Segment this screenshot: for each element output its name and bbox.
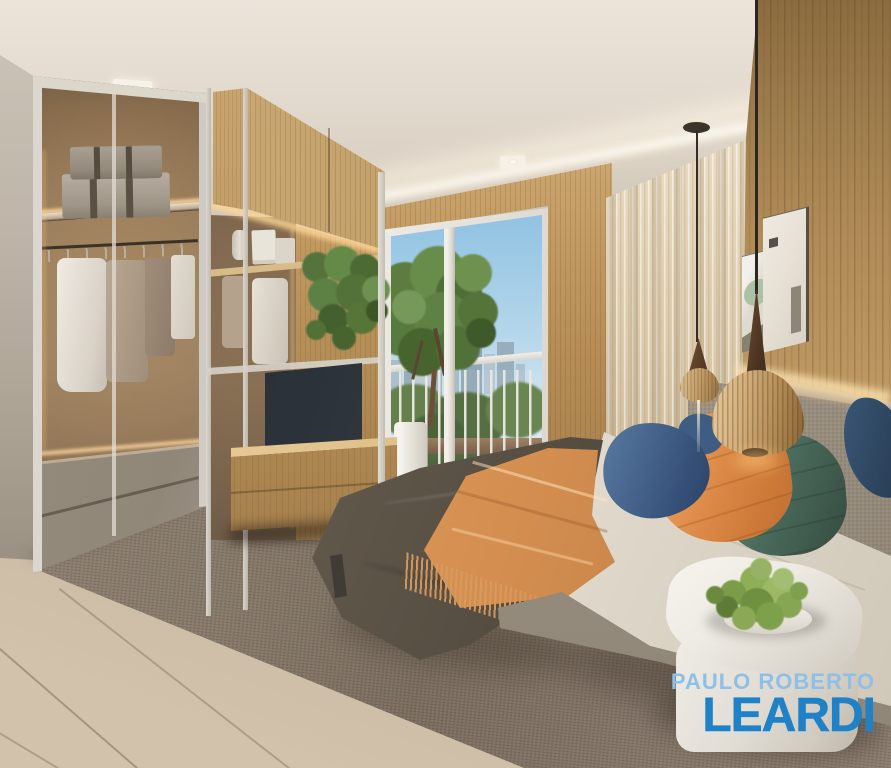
partition-frame-bar [206, 88, 211, 616]
white-decor-box [275, 238, 295, 264]
foliage [732, 606, 756, 630]
pendant-light-rod [697, 400, 700, 452]
cabinet-door-seam [328, 128, 330, 232]
foliage [756, 602, 784, 630]
foliage [790, 582, 808, 600]
bedroom-render-photo: PAULO ROBERTO LEARDI [0, 0, 891, 768]
white-books-stack [251, 230, 276, 265]
foliage [750, 558, 772, 580]
foliage [706, 586, 724, 604]
watermark-brand: LEARDI [671, 693, 875, 739]
foliage [466, 318, 496, 348]
artwork-gray-bar [791, 285, 801, 333]
foliage [392, 290, 426, 324]
foliage [306, 320, 326, 340]
framed-artwork [763, 206, 809, 352]
nightstand-plant [706, 558, 822, 630]
realtor-watermark: PAULO ROBERTO LEARDI [671, 672, 875, 738]
foliage [332, 326, 356, 350]
hanging-garment [252, 278, 288, 364]
artwork-dark-square [769, 237, 778, 248]
pendant-cord [755, 0, 758, 294]
spotlight-bulb [507, 159, 517, 166]
foliage [454, 254, 492, 292]
pendant-light-glow [734, 450, 778, 470]
pendant-cord [696, 130, 698, 342]
hanging-plant [298, 246, 386, 352]
recessed-spotlight [500, 155, 526, 168]
wooden-pendant-lamp [680, 368, 719, 403]
